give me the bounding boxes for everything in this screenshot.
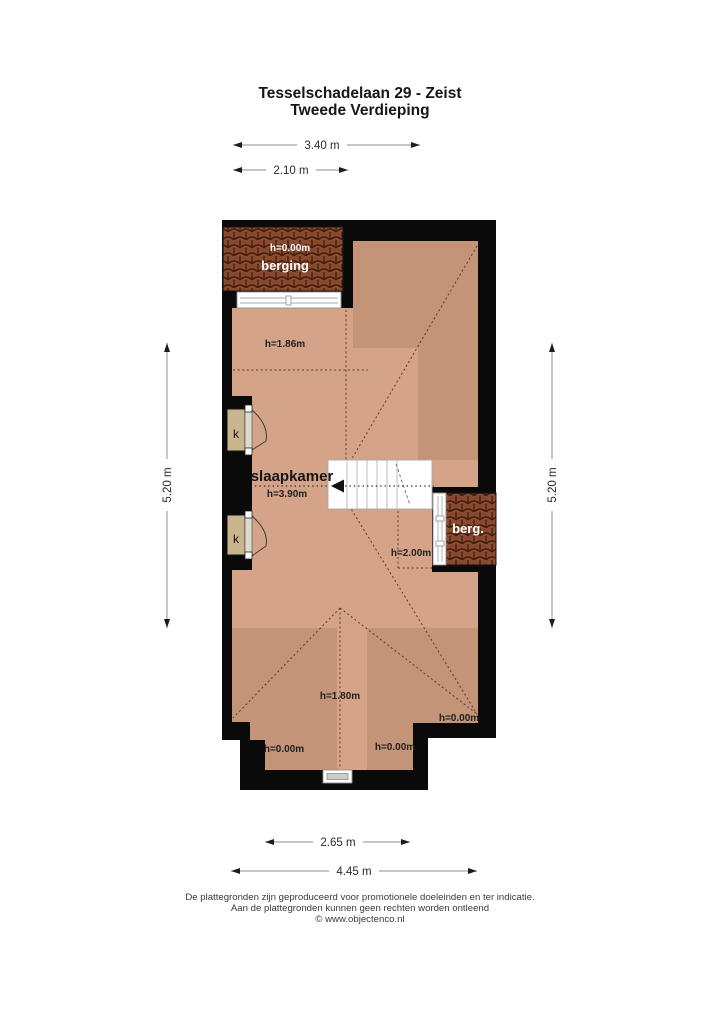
dimension-bottom-inner: 2.65 m: [265, 835, 410, 849]
arrowhead-bottom: [549, 619, 555, 628]
dim-bottom-outer-value: 4.45 m: [336, 866, 371, 878]
arrowhead-right: [411, 142, 420, 148]
closet-1-label: k: [233, 427, 240, 441]
room-label-slaapkamer: slaapkamer: [251, 468, 334, 485]
berg-door-tick-1: [436, 516, 444, 521]
height-label-000-bottom-right: h=0.00m: [439, 713, 479, 724]
floor-shade-right-column: [418, 348, 478, 460]
dimension-right: 5.20 m: [545, 343, 559, 628]
arrowhead-right: [401, 839, 410, 845]
closet-1-door-leaf: [245, 409, 252, 451]
height-label-180: h=1.80m: [320, 691, 360, 702]
slaapkamer-height-label: h=3.90m: [267, 489, 307, 500]
height-label-000-bottom-left: h=0.00m: [264, 744, 304, 755]
closet-2-hinge-top: [245, 511, 252, 518]
height-label-200: h=2.00m: [391, 548, 431, 559]
window-top: [237, 292, 341, 308]
height-label-000-bottom-middle: h=0.00m: [375, 742, 415, 753]
stairs: [328, 460, 434, 509]
footer-line-2: Aan de plattegronden kunnen geen rechten…: [0, 904, 720, 915]
arrowhead-top: [549, 343, 555, 352]
footer-block: De plattegronden zijn geproduceerd voor …: [0, 893, 720, 925]
window-bottom-glass: [327, 774, 348, 780]
berging-height-label: h=0.00m: [270, 243, 310, 254]
arrowhead-right: [339, 167, 348, 173]
dim-right-value: 5.20 m: [547, 467, 559, 502]
dim-top-outer-value: 3.40 m: [304, 140, 339, 152]
dimension-bottom-outer: 4.45 m: [231, 864, 477, 878]
arrowhead-left: [233, 142, 242, 148]
closet-2-door-leaf: [245, 515, 252, 555]
berg-door: [433, 493, 446, 565]
height-label-186: h=1.86m: [265, 339, 305, 350]
closet-2-hinge-bottom: [245, 552, 252, 559]
arrowhead-left: [265, 839, 274, 845]
arrowhead-bottom: [164, 619, 170, 628]
floorplan-page: Tesselschadelaan 29 - Zeist Tweede Verdi…: [0, 0, 720, 1018]
closet-2-label: k: [233, 532, 240, 546]
window-bottom: [323, 770, 352, 783]
room-label-berg: berg.: [452, 521, 484, 536]
dim-top-inner-value: 2.10 m: [273, 165, 308, 177]
room-label-berging: berging: [261, 258, 309, 273]
dimension-top-outer: 3.40 m: [233, 138, 420, 152]
dimension-left: 5.20 m: [160, 343, 174, 628]
closet-1-hinge-bottom: [245, 448, 252, 455]
dim-bottom-inner-value: 2.65 m: [320, 837, 355, 849]
arrowhead-top: [164, 343, 170, 352]
arrowhead-left: [233, 167, 242, 173]
floor-shade-top-right: [353, 241, 478, 348]
window-top-mullion: [286, 296, 291, 305]
footer-line-3: © www.objectenco.nl: [0, 915, 720, 926]
berg-door-tick-2: [436, 541, 444, 546]
arrowhead-left: [231, 868, 240, 874]
arrowhead-right: [468, 868, 477, 874]
closet-1-hinge-top: [245, 405, 252, 412]
dim-left-value: 5.20 m: [162, 467, 174, 502]
floorplan-svg: 3.40 m 2.10 m 5.20 m 5.20 m: [0, 0, 720, 1018]
dimension-top-inner: 2.10 m: [233, 163, 348, 177]
